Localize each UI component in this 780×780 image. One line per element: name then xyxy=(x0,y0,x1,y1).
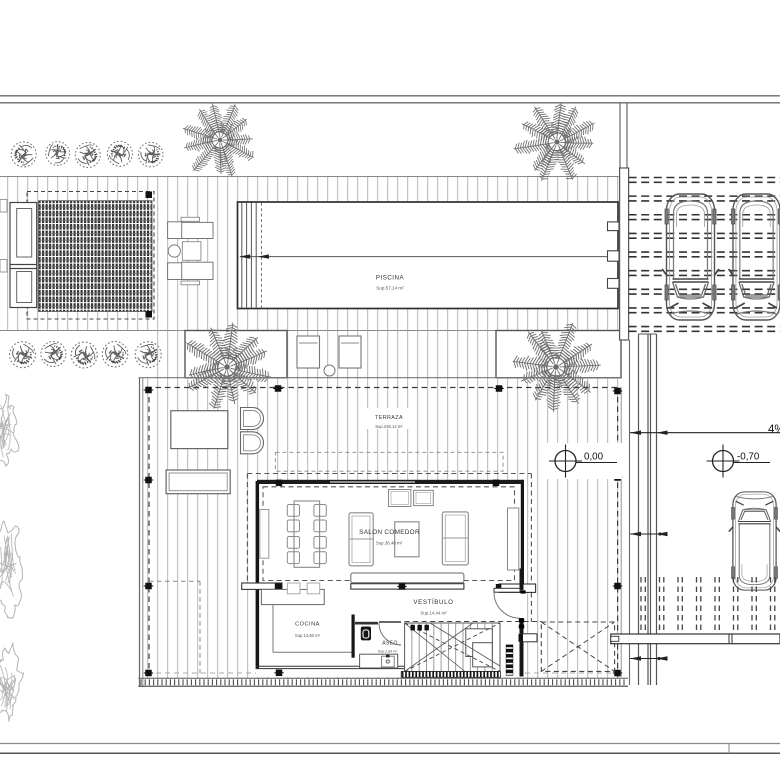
svg-text:Sup.246,14 m²: Sup.246,14 m² xyxy=(375,424,403,429)
svg-text:PISCINA: PISCINA xyxy=(376,275,405,282)
svg-text:SALON COMEDOR: SALON COMEDOR xyxy=(359,529,420,536)
svg-text:Sup.38,48 m²: Sup.38,48 m² xyxy=(376,541,403,546)
svg-text:Sup.14,44 m²: Sup.14,44 m² xyxy=(420,611,447,616)
svg-text:Sup.57,14 m²: Sup.57,14 m² xyxy=(376,286,404,291)
svg-text:VESTÍBULO: VESTÍBULO xyxy=(413,599,453,606)
svg-text:0,00: 0,00 xyxy=(584,452,604,463)
svg-text:COCINA: COCINA xyxy=(295,622,320,628)
svg-text:-0,70: -0,70 xyxy=(737,452,760,463)
svg-text:ASEO: ASEO xyxy=(382,641,398,647)
svg-text:Sup.2,84 m²: Sup.2,84 m² xyxy=(378,650,398,654)
svg-text:4%: 4% xyxy=(768,424,780,436)
svg-text:Sup.13,60 m²: Sup.13,60 m² xyxy=(295,633,321,638)
svg-text:TERRAZA: TERRAZA xyxy=(375,415,403,421)
